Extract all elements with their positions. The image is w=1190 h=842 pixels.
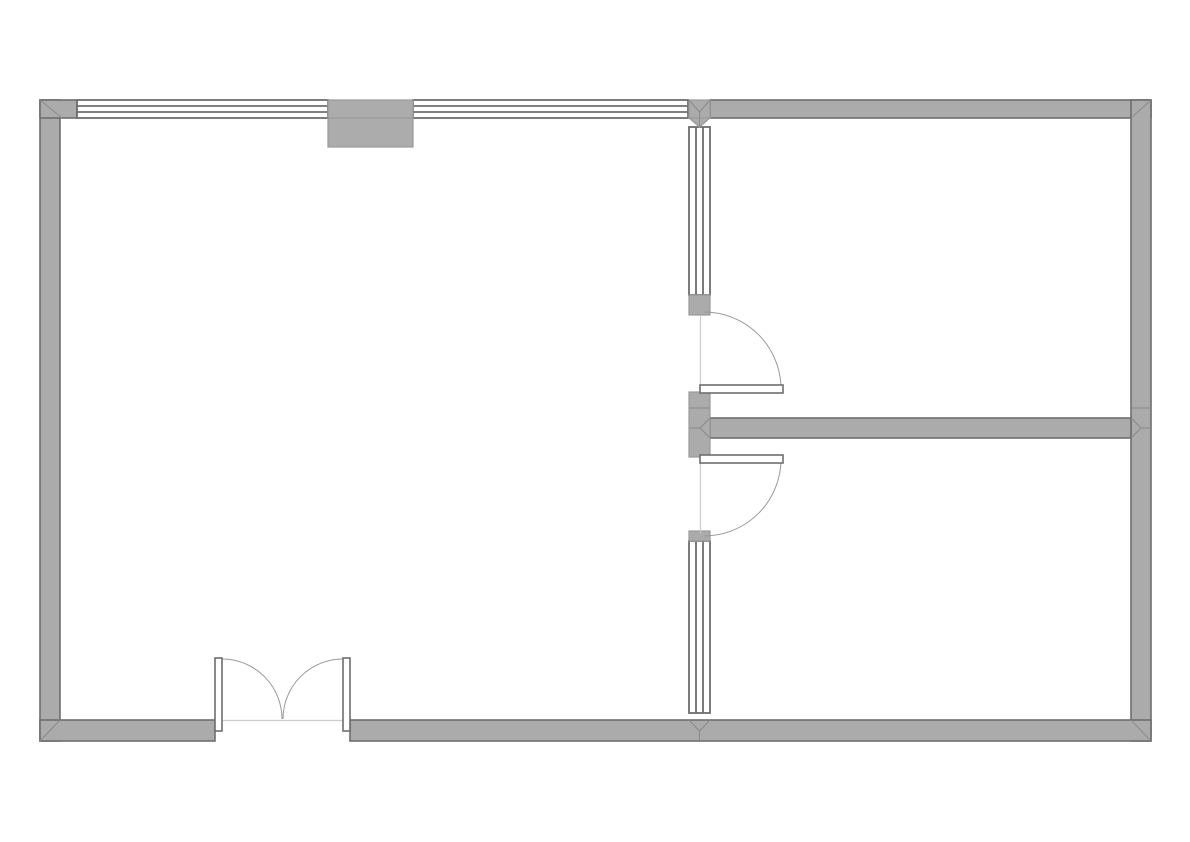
interior-wall-horizontal [710,418,1131,438]
floorplan-page [0,0,1190,842]
entrance-left-swing-arc [222,659,282,719]
upper-door-leaf [700,385,783,393]
entrance-right-swing-arc [283,659,343,719]
floorplan-canvas [0,0,1190,842]
windows-group [77,100,710,713]
vertical-window-upper [689,127,710,295]
top-window-left [77,100,328,118]
exterior-wall-top-right [710,100,1151,118]
top-window-right [413,100,688,118]
upper-door-swing-arc [704,312,781,389]
exterior-wall-left [40,100,60,741]
exterior-wall-bottom-left [40,720,215,741]
lower-interior-door [700,455,783,536]
entrance-left-door-leaf [215,658,222,731]
entrance-right-door-leaf [343,658,350,731]
exterior-wall-bottom-right [350,720,1151,741]
wall-segment-between-doors [689,392,710,457]
vertical-window-lower [689,541,710,713]
chimney-block [328,100,413,147]
entrance-double-door [215,658,350,731]
upper-interior-door [700,312,783,393]
lower-door-leaf [700,455,783,463]
walls-group [40,100,1151,741]
lower-door-swing-arc [704,459,781,536]
